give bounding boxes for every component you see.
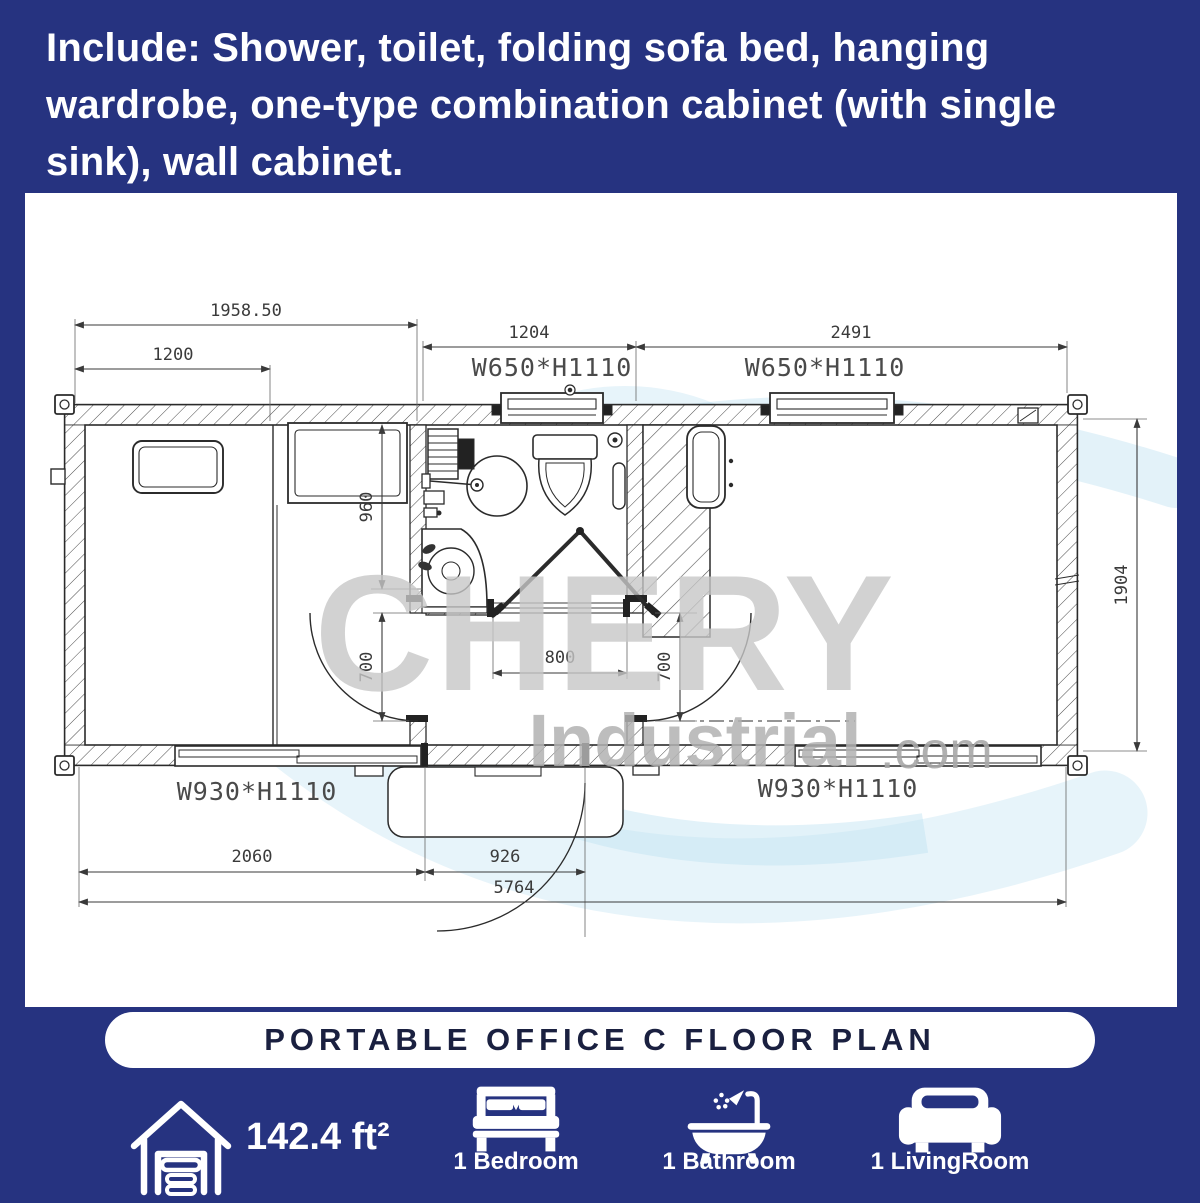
description-line-3: sink), wall cabinet. bbox=[46, 134, 1162, 191]
bathroom-label: 1 Bathroom bbox=[619, 1148, 839, 1176]
toilet bbox=[533, 435, 597, 459]
dim-right-room: 2491 bbox=[831, 323, 872, 343]
dim-height: 1904 bbox=[1112, 565, 1132, 606]
floor-area-value: 142.4 ft² bbox=[246, 1116, 390, 1159]
description-line-1: Include: Shower, toilet, folding sofa be… bbox=[46, 20, 1162, 77]
bedroom-label: 1 Bedroom bbox=[406, 1148, 626, 1176]
shower-mount bbox=[422, 474, 430, 488]
watermark-tld: .com bbox=[880, 722, 993, 780]
window-label-top-bath: W650*H1110 bbox=[472, 353, 633, 382]
product-description: Include: Shower, toilet, folding sofa be… bbox=[46, 20, 1162, 191]
dim-entry-door: 926 bbox=[490, 847, 521, 867]
dim-bath-depth: 960 bbox=[357, 492, 377, 523]
title-banner: PORTABLE OFFICE C FLOOR PLAN bbox=[105, 1012, 1095, 1068]
dim-total-width: 5764 bbox=[494, 878, 535, 898]
left-room-table bbox=[133, 441, 223, 493]
page: { "header": { "lines": [ "Include: Showe… bbox=[0, 0, 1200, 1200]
watermark-name: Industrial bbox=[528, 699, 861, 782]
page-title: PORTABLE OFFICE C FLOOR PLAN bbox=[264, 1022, 936, 1058]
dim-top-total: 1958.50 bbox=[210, 301, 282, 321]
floor-plan-drawing: 1958.50 1200 1204 2491 960 700 800 700 1… bbox=[25, 193, 1177, 1007]
floor-plan-card: 1958.50 1200 1204 2491 960 700 800 700 1… bbox=[25, 193, 1177, 1007]
window-label-bottom-left: W930*H1110 bbox=[177, 777, 338, 806]
wardrobe bbox=[288, 423, 407, 503]
dim-bath-width: 1204 bbox=[509, 323, 550, 343]
dim-top-left: 1200 bbox=[153, 345, 194, 365]
dim-bottom-left: 2060 bbox=[232, 847, 273, 867]
watermark-brand: CHERY bbox=[314, 541, 895, 725]
description-line-2: wardrobe, one-type combination cabinet (… bbox=[46, 77, 1162, 134]
window-label-top-right: W650*H1110 bbox=[745, 353, 906, 382]
livingroom-label: 1 LivingRoom bbox=[840, 1148, 1060, 1176]
garage-icon bbox=[128, 1090, 234, 1203]
